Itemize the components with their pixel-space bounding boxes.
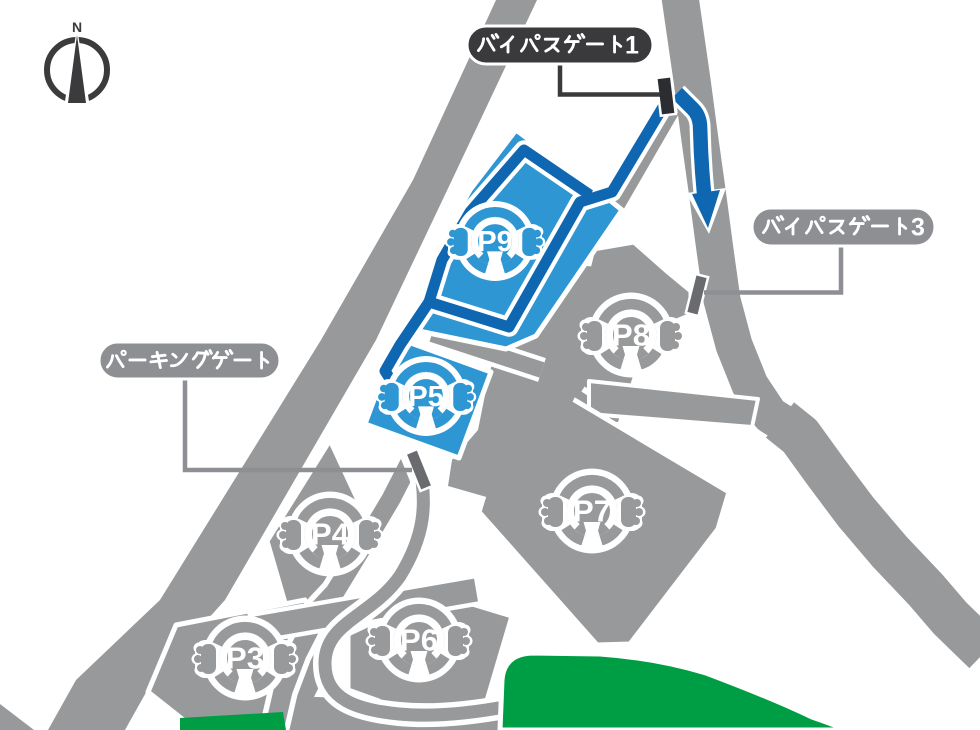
svg-text:1: 1: [625, 32, 639, 60]
svg-text:P4: P4: [311, 517, 350, 552]
svg-text:P9: P9: [477, 226, 513, 258]
svg-text:3: 3: [911, 214, 925, 242]
svg-text:P3: P3: [226, 641, 264, 676]
svg-text:P5: P5: [408, 381, 444, 413]
svg-text:N: N: [72, 19, 82, 35]
svg-text:P6: P6: [400, 623, 438, 658]
svg-text:P8: P8: [612, 318, 650, 353]
svg-text:P7: P7: [573, 494, 611, 529]
